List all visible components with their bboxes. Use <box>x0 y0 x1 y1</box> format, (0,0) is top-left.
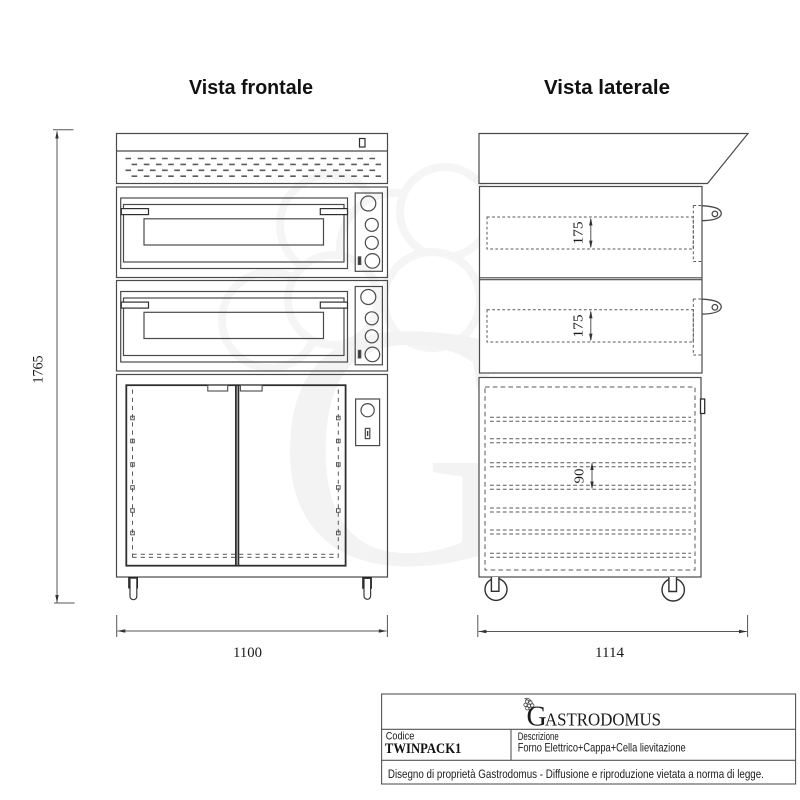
svg-text:1114: 1114 <box>595 645 624 661</box>
svg-text:1100: 1100 <box>233 645 262 661</box>
svg-text:TWINPACK1: TWINPACK1 <box>385 741 462 757</box>
svg-text:Forno Elettrico+Cappa+Cella li: Forno Elettrico+Cappa+Cella lievitazione <box>518 740 686 754</box>
svg-text:175: 175 <box>572 315 587 338</box>
svg-text:Vista laterale: Vista laterale <box>544 77 670 99</box>
svg-text:175: 175 <box>572 222 587 245</box>
svg-text:1765: 1765 <box>31 356 47 384</box>
svg-text:Vista frontale: Vista frontale <box>189 77 313 99</box>
svg-text:Disegno di proprietà Gastrodom: Disegno di proprietà Gastrodomus - Diffu… <box>388 767 764 781</box>
svg-text:90: 90 <box>573 469 588 484</box>
svg-text:G: G <box>527 702 547 733</box>
svg-text:ASTRODOMUS: ASTRODOMUS <box>545 709 661 729</box>
